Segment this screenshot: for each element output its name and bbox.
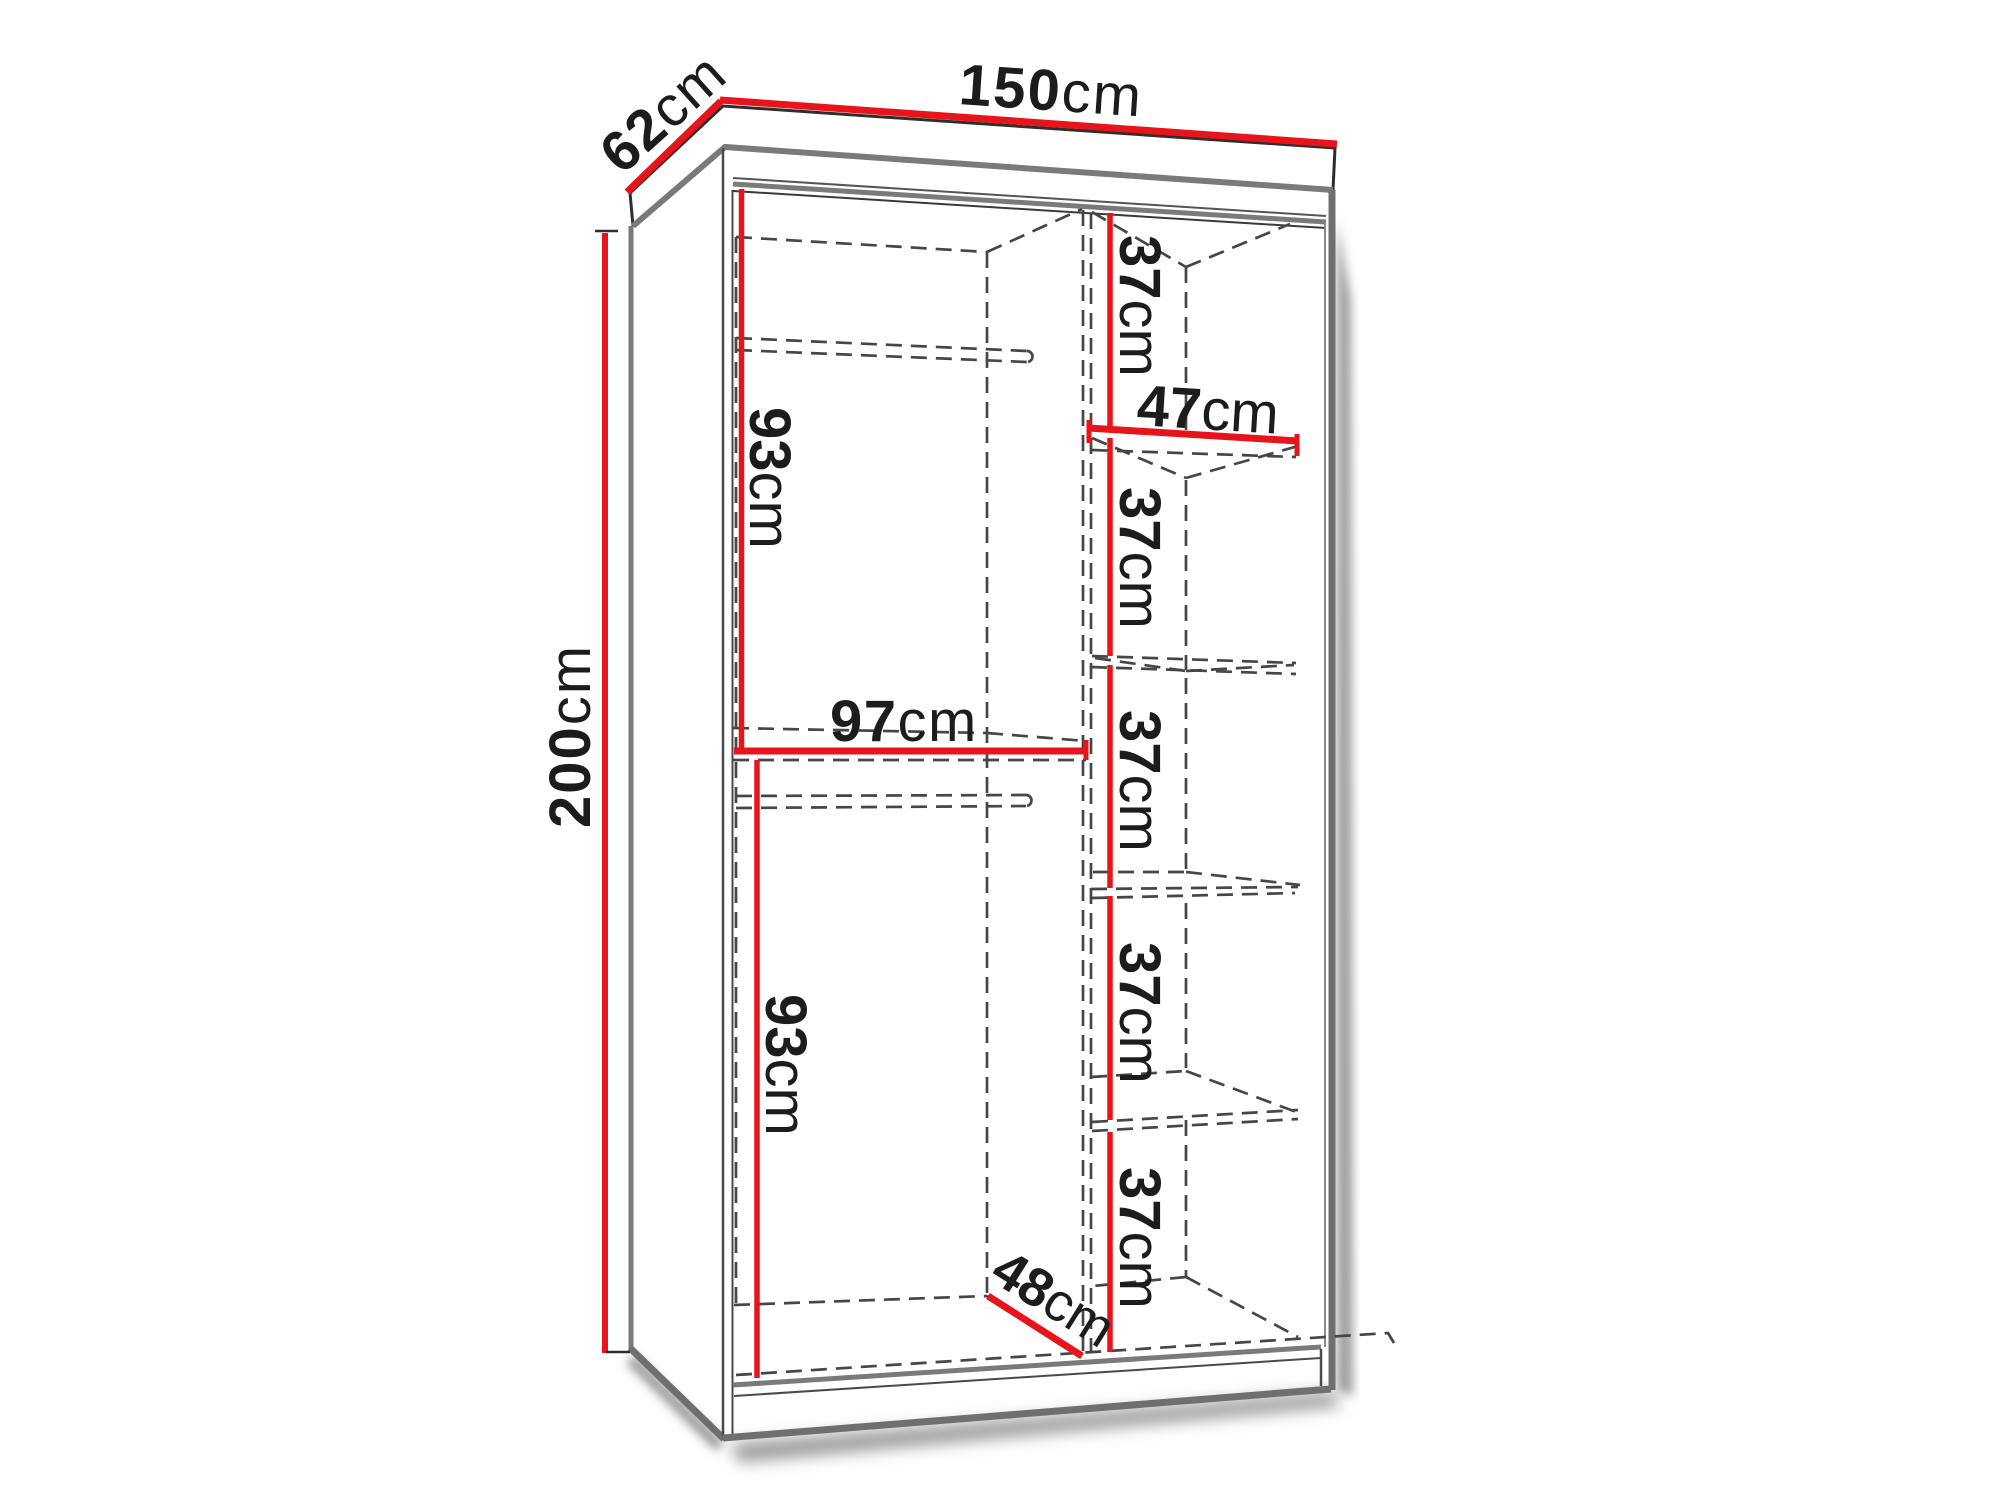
svg-text:97cm: 97cm bbox=[830, 689, 978, 754]
svg-text:93cm: 93cm bbox=[753, 994, 818, 1136]
svg-text:37cm: 37cm bbox=[1107, 710, 1172, 852]
svg-text:37cm: 37cm bbox=[1107, 235, 1172, 377]
svg-text:47cm: 47cm bbox=[1135, 373, 1281, 447]
svg-text:37cm: 37cm bbox=[1107, 942, 1172, 1084]
svg-text:200cm: 200cm bbox=[538, 644, 603, 828]
svg-text:150cm: 150cm bbox=[957, 52, 1145, 129]
svg-text:37cm: 37cm bbox=[1107, 487, 1172, 629]
svg-text:93cm: 93cm bbox=[737, 407, 802, 549]
svg-text:37cm: 37cm bbox=[1107, 1167, 1172, 1309]
